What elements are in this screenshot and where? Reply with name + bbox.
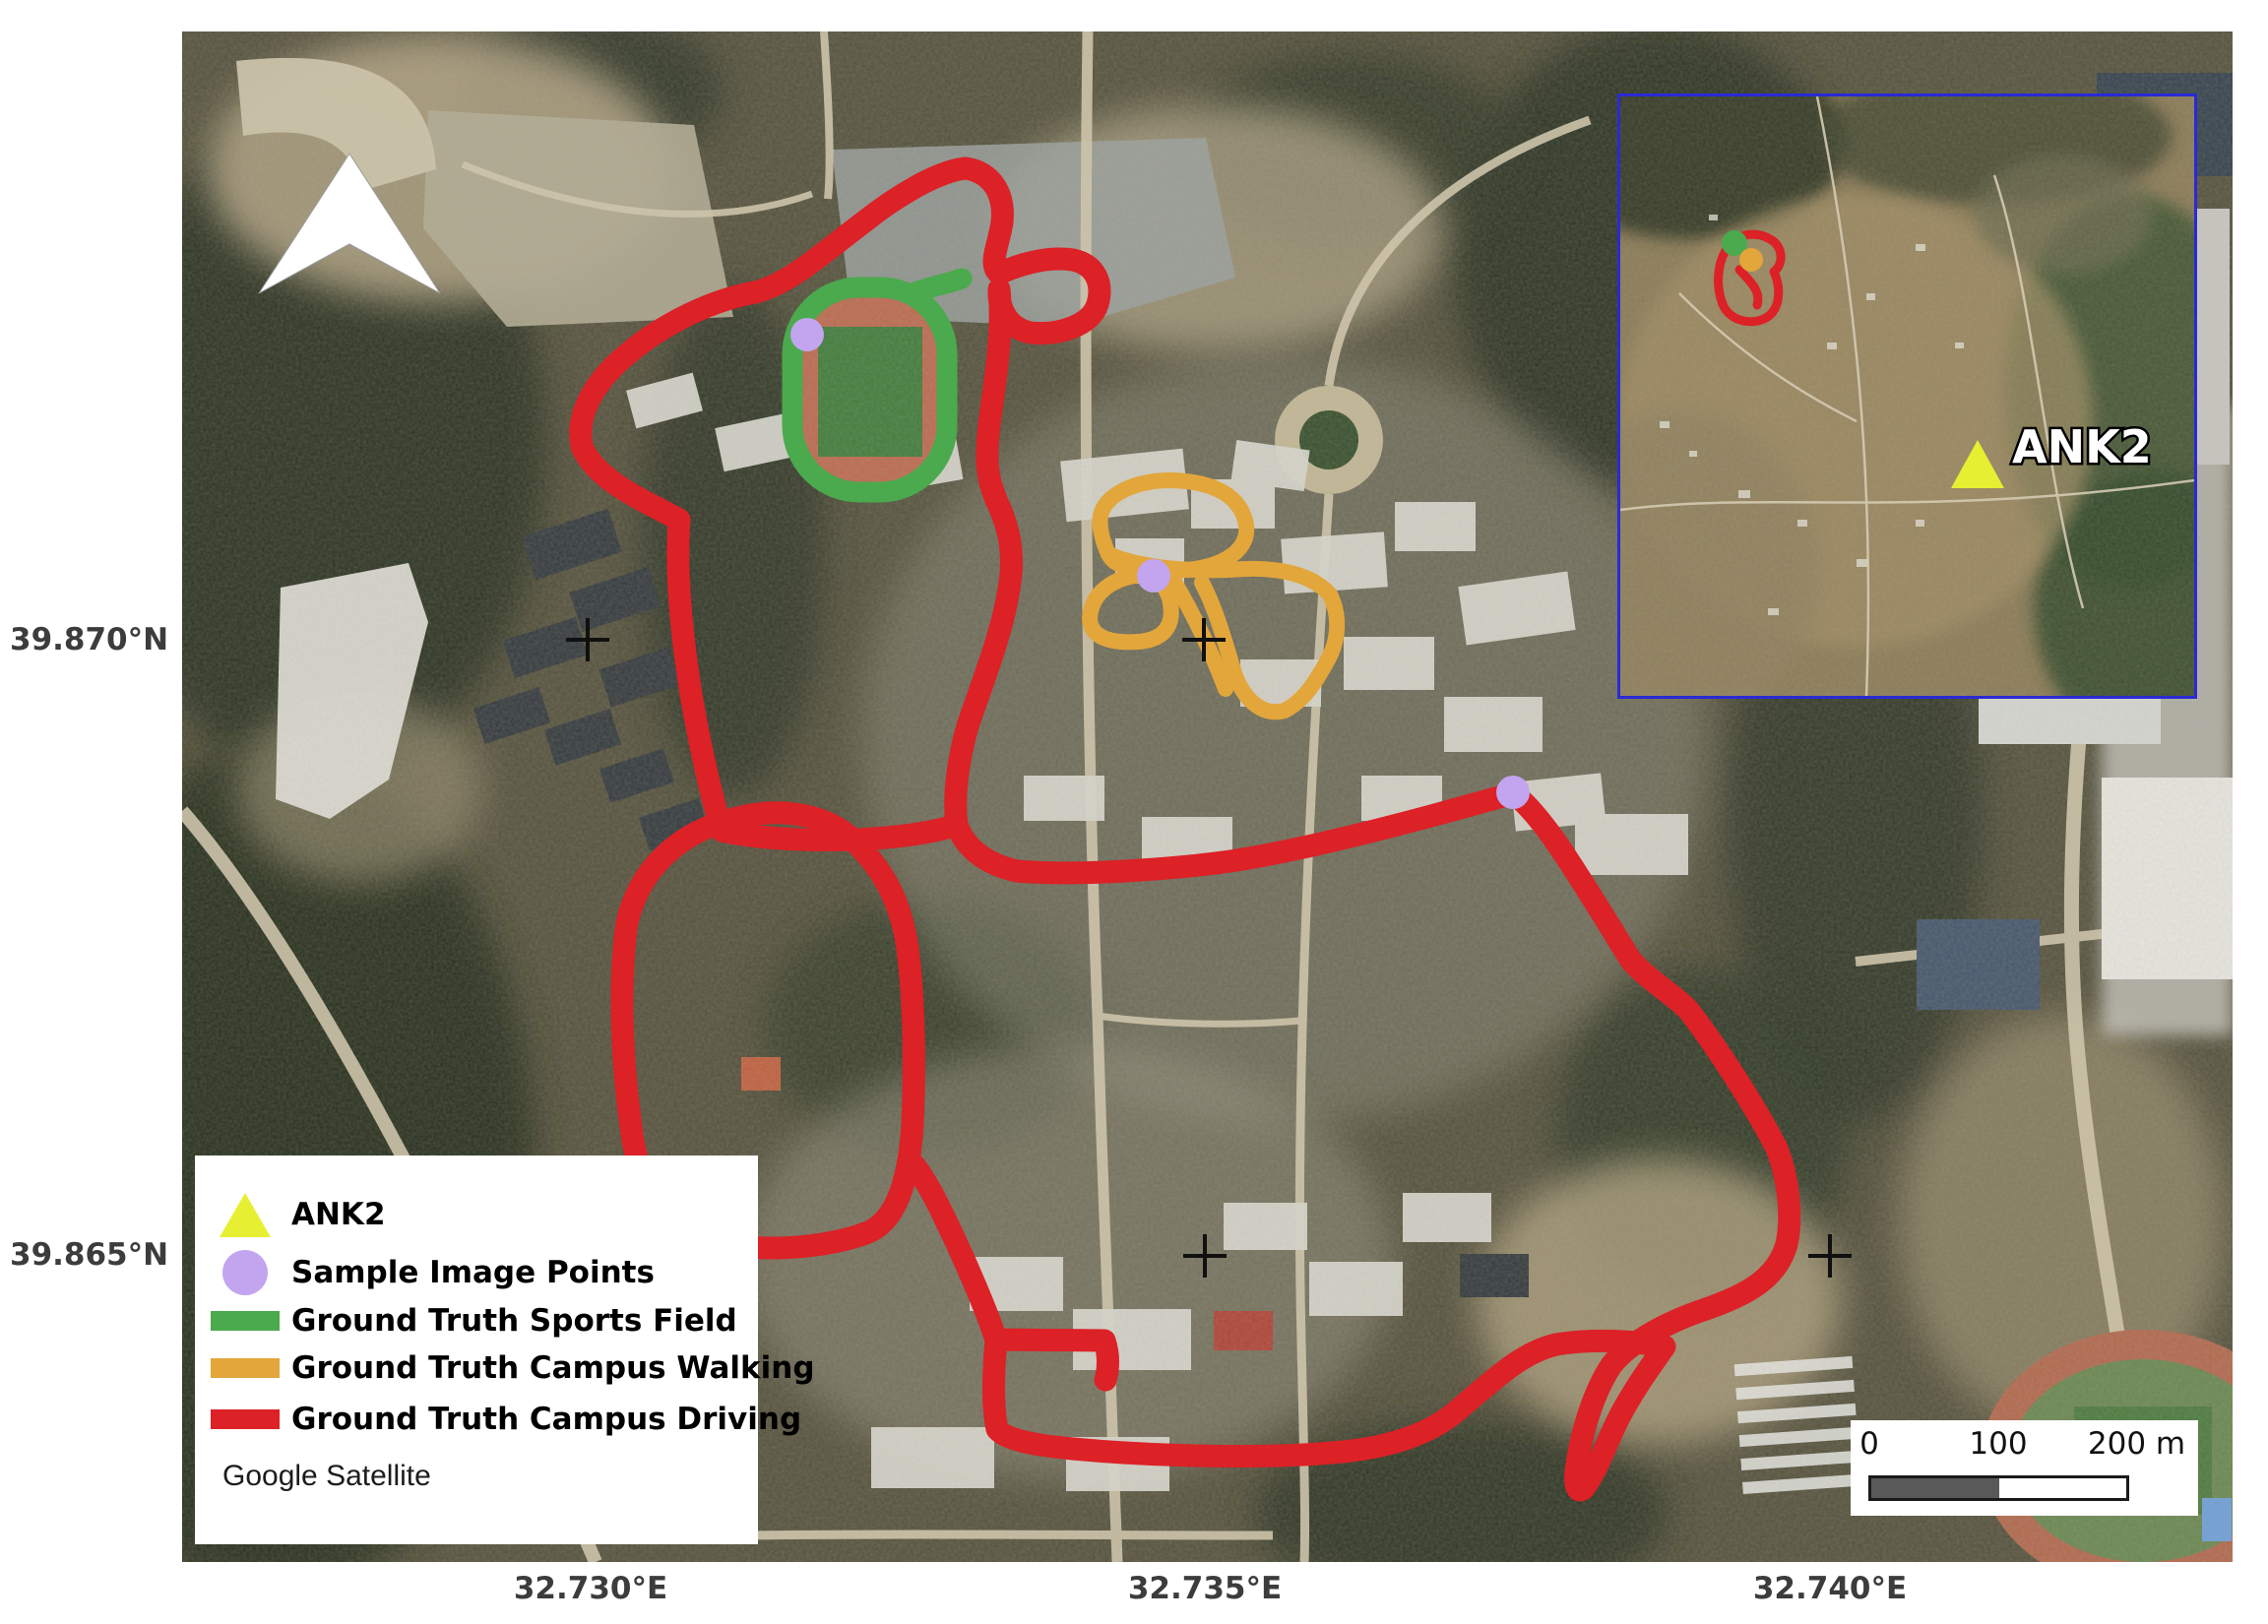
scale-tick-label: 0	[1854, 1426, 1885, 1462]
lon-tick-label: 32.735°E	[1102, 1571, 1308, 1606]
inset-walking-blob	[1739, 248, 1763, 272]
sample-point	[790, 318, 824, 351]
triangle-icon	[203, 1191, 287, 1238]
legend: ANK2 Sample Image Points Ground Truth Sp…	[195, 1156, 758, 1544]
line-swatch-icon	[203, 1297, 287, 1344]
basemap-attribution: Google Satellite	[222, 1455, 431, 1498]
scale-bar-dark-segment	[1871, 1478, 1999, 1498]
legend-item-label: Sample Image Points	[291, 1249, 655, 1296]
sample-point	[1137, 559, 1170, 593]
scale-bar: 0 100 200 m	[1851, 1420, 2198, 1516]
legend-item-label: ANK2	[291, 1191, 386, 1238]
legend-item-sports-field: Ground Truth Sports Field	[195, 1297, 758, 1344]
inset-overview-map: ANK2	[1617, 94, 2197, 699]
line-swatch-icon	[203, 1396, 287, 1443]
legend-item-label: Ground Truth Sports Field	[291, 1297, 737, 1344]
inset-grain	[1620, 96, 2194, 696]
lon-tick-label: 32.740°E	[1727, 1571, 1933, 1606]
line-swatch-icon	[203, 1344, 287, 1392]
legend-item-label: Ground Truth Campus Walking	[291, 1344, 815, 1392]
legend-item-campus-driving: Ground Truth Campus Driving	[195, 1396, 758, 1443]
legend-item-campus-walking: Ground Truth Campus Walking	[195, 1344, 758, 1392]
lon-tick-label: 32.730°E	[487, 1571, 694, 1606]
scale-bar-rule	[1868, 1475, 2129, 1501]
map-figure: ANK2 39.870°N 39.865°N 32.730°E 32.735°E…	[0, 0, 2268, 1624]
legend-item-sample-points: Sample Image Points	[195, 1249, 758, 1296]
lat-tick-label: 39.870°N	[10, 622, 167, 657]
scale-bar-light-segment	[1999, 1478, 2127, 1498]
legend-item-station: ANK2	[195, 1191, 758, 1238]
scale-tick-label: 100	[1959, 1426, 2038, 1462]
inset-station-label: ANK2	[2012, 420, 2152, 473]
lat-tick-label: 39.865°N	[10, 1237, 167, 1273]
legend-item-label: Ground Truth Campus Driving	[291, 1396, 801, 1443]
circle-icon	[203, 1249, 287, 1296]
scale-tick-label: 200 m	[2080, 1426, 2193, 1462]
sample-point	[1496, 776, 1530, 809]
